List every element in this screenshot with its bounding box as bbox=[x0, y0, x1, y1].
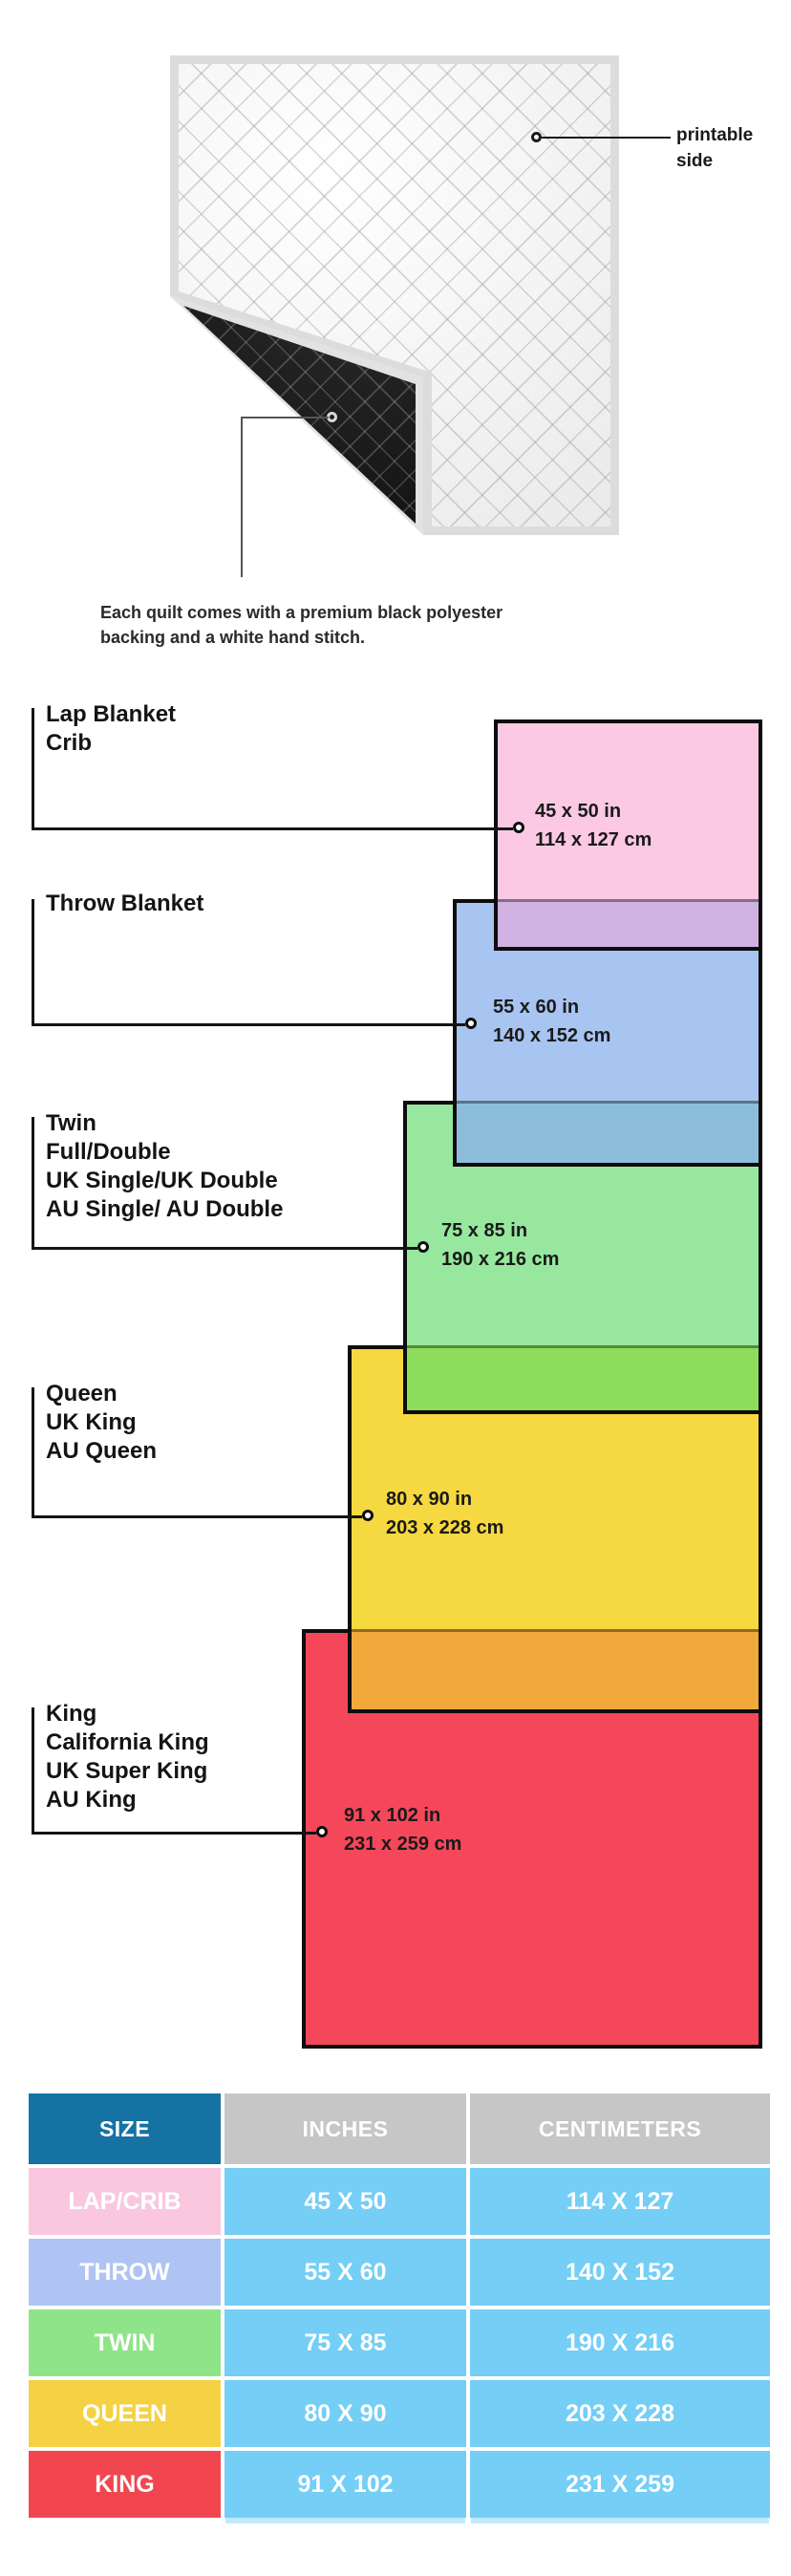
table-cell-size-4: KING bbox=[29, 2451, 221, 2518]
table-cell-size-1: THROW bbox=[29, 2239, 221, 2306]
table-cell-inches-3: 80 X 90 bbox=[224, 2380, 466, 2447]
leader-line-v-throw bbox=[32, 899, 34, 1023]
dimension-line: 203 x 228 cm bbox=[386, 1513, 503, 1542]
dimension-line: 231 x 259 cm bbox=[344, 1830, 461, 1858]
size-label-line: AU Queen bbox=[46, 1437, 157, 1466]
size-label-line: AU King bbox=[46, 1786, 209, 1814]
size-dimensions-king: 91 x 102 in231 x 259 cm bbox=[344, 1801, 461, 1858]
leader-line-v-twin bbox=[32, 1117, 34, 1247]
dimension-line: 75 x 85 in bbox=[441, 1216, 559, 1245]
dimension-line: 140 x 152 cm bbox=[493, 1021, 610, 1050]
dimension-line: 55 x 60 in bbox=[493, 993, 610, 1021]
leader-marker-lap bbox=[513, 822, 524, 833]
dimension-line: 45 x 50 in bbox=[535, 797, 652, 826]
figure-caption: Each quilt comes with a premium black po… bbox=[100, 600, 530, 650]
table-header-inches: INCHES bbox=[224, 2093, 466, 2164]
size-label-line: UK King bbox=[46, 1408, 157, 1437]
leader-line-h-lap bbox=[32, 827, 513, 830]
printable-side-label: printable side bbox=[676, 122, 781, 174]
dimension-line: 114 x 127 cm bbox=[535, 826, 652, 854]
overlap-band-0 bbox=[498, 899, 759, 947]
leader-marker-king bbox=[316, 1826, 328, 1837]
size-label-throw: Throw Blanket bbox=[46, 890, 203, 918]
size-label-line: Crib bbox=[46, 729, 176, 758]
size-label-lap: Lap BlanketCrib bbox=[46, 700, 176, 758]
size-label-line: AU Single/ AU Double bbox=[46, 1195, 283, 1224]
size-label-line: Lap Blanket bbox=[46, 700, 176, 729]
leader-line-h-king bbox=[32, 1832, 316, 1835]
overlap-band-2 bbox=[407, 1345, 759, 1410]
overlap-band-3 bbox=[352, 1629, 759, 1709]
size-table: SIZEINCHESCENTIMETERSLAP/CRIB45 X 50114 … bbox=[29, 2093, 770, 2518]
backing-leader-line-h bbox=[241, 417, 329, 419]
size-dimensions-lap: 45 x 50 in114 x 127 cm bbox=[535, 797, 652, 854]
size-label-line: King bbox=[46, 1700, 209, 1728]
size-dimensions-queen: 80 x 90 in203 x 228 cm bbox=[386, 1485, 503, 1542]
leader-line-v-queen bbox=[32, 1387, 34, 1515]
size-label-line: Twin bbox=[46, 1109, 283, 1138]
overlap-band-1 bbox=[457, 1101, 759, 1163]
dimension-line: 91 x 102 in bbox=[344, 1801, 461, 1830]
leader-marker-queen bbox=[362, 1510, 374, 1521]
size-dimensions-throw: 55 x 60 in140 x 152 cm bbox=[493, 993, 610, 1050]
table-cell-cm-2: 190 X 216 bbox=[470, 2309, 770, 2376]
size-label-twin: TwinFull/DoubleUK Single/UK DoubleAU Sin… bbox=[46, 1109, 283, 1224]
table-cell-inches-2: 75 X 85 bbox=[224, 2309, 466, 2376]
table-cell-size-3: QUEEN bbox=[29, 2380, 221, 2447]
dimension-line: 80 x 90 in bbox=[386, 1485, 503, 1513]
printable-side-leader-line bbox=[542, 137, 671, 139]
leader-line-v-lap bbox=[32, 708, 34, 827]
table-cell-cm-1: 140 X 152 bbox=[470, 2239, 770, 2306]
size-dimensions-twin: 75 x 85 in190 x 216 cm bbox=[441, 1216, 559, 1274]
backing-leader-line-v bbox=[241, 417, 243, 577]
leader-line-v-king bbox=[32, 1707, 34, 1832]
quilt-photo bbox=[170, 55, 619, 535]
size-label-line: Throw Blanket bbox=[46, 890, 203, 918]
table-header-size: SIZE bbox=[29, 2093, 221, 2164]
size-label-line: Full/Double bbox=[46, 1138, 283, 1167]
size-label-king: KingCalifornia KingUK Super KingAU King bbox=[46, 1700, 209, 1814]
table-cell-inches-0: 45 X 50 bbox=[224, 2168, 466, 2235]
table-cell-cm-0: 114 X 127 bbox=[470, 2168, 770, 2235]
table-cell-cm-4: 231 X 259 bbox=[470, 2451, 770, 2518]
leader-marker-twin bbox=[417, 1241, 429, 1253]
table-cell-inches-4: 91 X 102 bbox=[224, 2451, 466, 2518]
size-guide-page: printable side Each quilt comes with a p… bbox=[0, 0, 791, 2576]
table-header-centimeters: CENTIMETERS bbox=[470, 2093, 770, 2164]
size-label-line: Queen bbox=[46, 1380, 157, 1408]
table-cell-cm-3: 203 X 228 bbox=[470, 2380, 770, 2447]
leader-marker-throw bbox=[465, 1018, 477, 1029]
size-label-line: UK Super King bbox=[46, 1757, 209, 1786]
table-cell-inches-1: 55 X 60 bbox=[224, 2239, 466, 2306]
leader-line-h-queen bbox=[32, 1515, 362, 1518]
dimension-line: 190 x 216 cm bbox=[441, 1245, 559, 1274]
table-cell-size-2: TWIN bbox=[29, 2309, 221, 2376]
size-label-line: California King bbox=[46, 1728, 209, 1757]
leader-line-h-throw bbox=[32, 1023, 465, 1026]
size-label-queen: QueenUK KingAU Queen bbox=[46, 1380, 157, 1466]
leader-line-h-twin bbox=[32, 1247, 417, 1250]
size-label-line: UK Single/UK Double bbox=[46, 1167, 283, 1195]
table-cell-size-0: LAP/CRIB bbox=[29, 2168, 221, 2235]
printable-side-marker bbox=[531, 132, 542, 142]
